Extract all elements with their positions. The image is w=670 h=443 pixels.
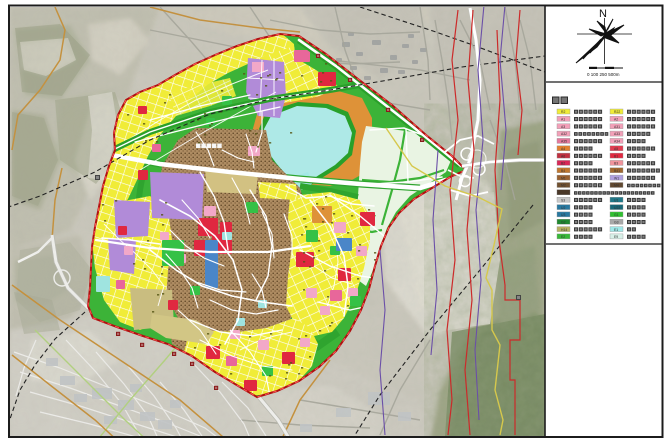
svg-text:A34: A34 bbox=[614, 140, 620, 144]
svg-text:A4: A4 bbox=[561, 147, 565, 151]
svg-text:E2: E2 bbox=[561, 235, 565, 239]
svg-text:A2: A2 bbox=[614, 118, 618, 122]
svg-text:A35: A35 bbox=[561, 140, 567, 144]
svg-text:U3: U3 bbox=[561, 213, 565, 217]
svg-text:R2: R2 bbox=[561, 110, 565, 114]
svg-text:A32: A32 bbox=[561, 132, 567, 136]
svg-text:B3: B3 bbox=[614, 162, 618, 166]
svg-text:E9: E9 bbox=[614, 235, 618, 239]
svg-text:A5: A5 bbox=[614, 147, 618, 151]
svg-text:A6: A6 bbox=[561, 154, 565, 158]
svg-text:B1: B1 bbox=[614, 154, 618, 158]
svg-text:U2: U2 bbox=[561, 206, 565, 210]
svg-text:E1: E1 bbox=[614, 228, 618, 232]
svg-text:U1: U1 bbox=[614, 198, 618, 202]
svg-text:A3: A3 bbox=[561, 125, 565, 129]
svg-text:M4: M4 bbox=[614, 184, 619, 188]
svg-text:S3: S3 bbox=[561, 198, 565, 202]
svg-text:G1: G1 bbox=[614, 213, 619, 217]
svg-text:G3: G3 bbox=[614, 220, 619, 224]
svg-text:R22: R22 bbox=[614, 110, 620, 114]
svg-text:M2: M2 bbox=[561, 184, 566, 188]
svg-text:A1: A1 bbox=[561, 118, 565, 122]
svg-text:W1: W1 bbox=[614, 176, 619, 180]
svg-text:0 100 250 500m: 0 100 250 500m bbox=[587, 72, 620, 77]
svg-text:H14: H14 bbox=[561, 228, 567, 232]
svg-text:N: N bbox=[599, 8, 607, 20]
svg-text:G2: G2 bbox=[561, 220, 566, 224]
svg-text:U22: U22 bbox=[614, 206, 620, 210]
svg-text:B2: B2 bbox=[561, 162, 565, 166]
svg-text:A31: A31 bbox=[614, 125, 620, 129]
svg-text:B4: B4 bbox=[561, 169, 565, 173]
svg-text:B41: B41 bbox=[614, 169, 620, 173]
svg-text:M1: M1 bbox=[561, 176, 566, 180]
svg-text:A33: A33 bbox=[614, 132, 620, 136]
